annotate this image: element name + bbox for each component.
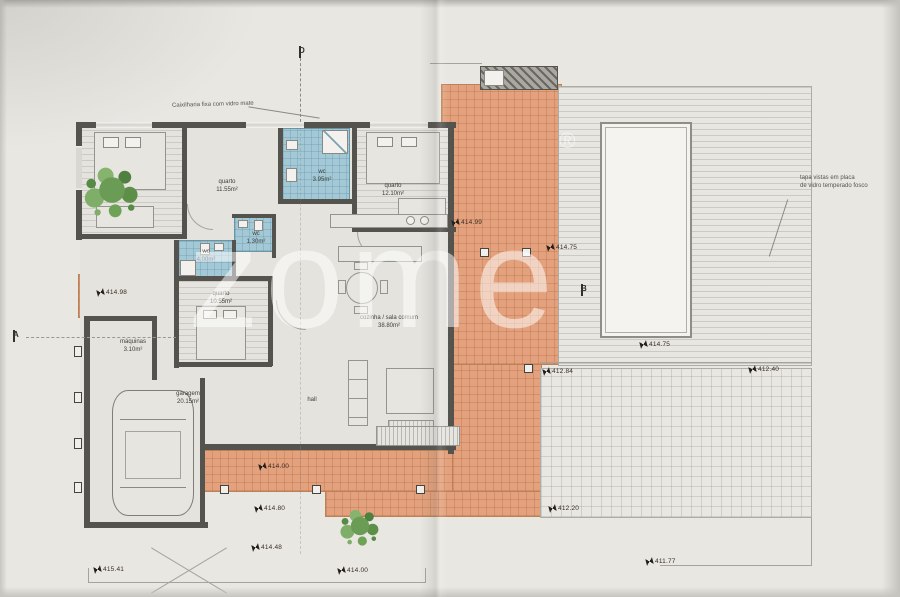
registered-mark-icon: ® <box>559 130 575 152</box>
elevation-value: 415.41 <box>103 566 124 573</box>
room-label: quarto12.10m² <box>382 182 404 198</box>
benchmark-icon <box>337 566 346 575</box>
elevation-value: 414.98 <box>106 289 127 296</box>
benchmark-icon <box>748 365 757 374</box>
elevation-marker: 414.00 <box>259 463 289 470</box>
benchmark-icon <box>96 288 105 297</box>
section-letter: B <box>581 285 587 293</box>
room-label: quarto11.55m² <box>216 178 238 194</box>
photo-shadow <box>0 0 260 150</box>
elevation-value: 414.48 <box>261 544 282 551</box>
benchmark-icon <box>258 462 267 471</box>
floor-plan-photo: Caixilharia fixa com vidro mate tapa vis… <box>0 0 900 597</box>
benchmark-icon <box>93 565 102 574</box>
room-label: wc3.95m² <box>313 168 332 184</box>
elevation-marker: 414.75 <box>640 341 670 348</box>
elevation-value: 412.40 <box>758 366 779 373</box>
paper-fold-crease <box>420 0 448 597</box>
elevation-marker: 412.40 <box>749 366 779 373</box>
elevation-value: 414.75 <box>649 341 670 348</box>
section-letter: A <box>13 331 19 339</box>
elevation-marker: 414.98 <box>97 289 127 296</box>
elevation-value: 412.20 <box>558 505 579 512</box>
elevation-value: 414.00 <box>347 567 368 574</box>
room-label: hall <box>307 396 316 404</box>
elevation-marker: 412.20 <box>549 505 579 512</box>
elevation-value: 412.84 <box>552 368 573 375</box>
elevation-marker: 414.48 <box>252 544 282 551</box>
note-tapa-vistas: tapa vistas em placa de vidro temperado … <box>800 174 886 191</box>
zome-watermark: zome® <box>188 208 559 350</box>
benchmark-icon <box>645 557 654 566</box>
benchmark-icon <box>254 504 263 513</box>
elevation-value: 414.80 <box>264 505 285 512</box>
elevation-value: 414.00 <box>268 463 289 470</box>
elevation-marker: 411.77 <box>646 558 676 565</box>
note-line2: de vidro temperado fosco <box>800 182 886 190</box>
benchmark-icon <box>639 340 648 349</box>
elevation-marker: 414.80 <box>255 505 285 512</box>
elevation-marker: 412.84 <box>543 368 573 375</box>
room-label: garagem20.15m² <box>176 390 200 406</box>
photo-edge-right <box>882 0 900 597</box>
elevation-value: 411.77 <box>655 558 676 565</box>
room-label: máquinas3.10m² <box>120 338 146 354</box>
section-letter: D <box>299 47 305 55</box>
note-line1: tapa vistas em placa <box>800 174 886 182</box>
photo-edge-bottom <box>0 587 900 597</box>
benchmark-icon <box>251 543 260 552</box>
elevation-marker: 415.41 <box>94 566 124 573</box>
benchmark-icon <box>548 504 557 513</box>
elevation-marker: 414.00 <box>338 567 368 574</box>
benchmark-icon <box>542 367 551 376</box>
watermark-text: zome <box>188 199 559 358</box>
